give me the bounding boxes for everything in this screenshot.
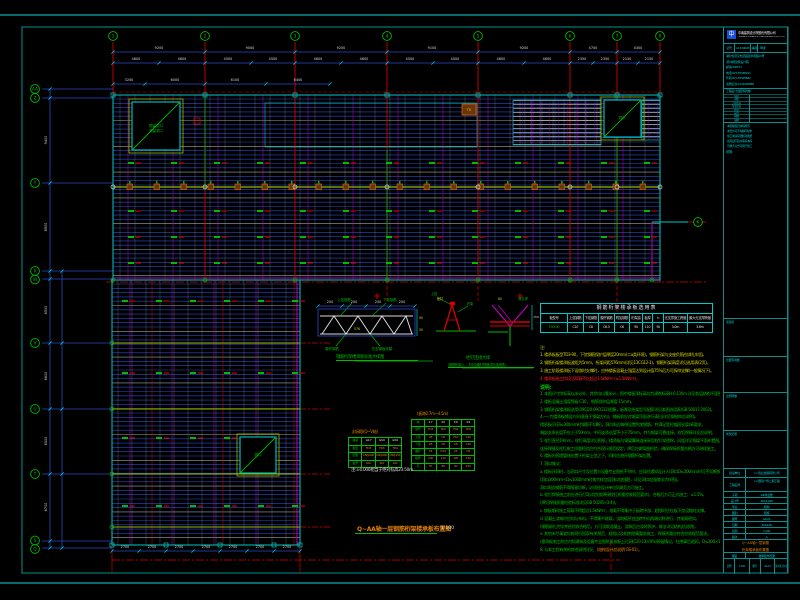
plan-annotation: 栓钉 [437,296,444,301]
dimension-number: 9400 [44,136,48,145]
zone-table-right-title: (板跨2.7m~4.5m) [417,411,448,417]
dimension-number: 2700 [148,545,157,549]
zone-table-cell: 130 [462,456,474,462]
grid-bubble-label: U [33,407,36,413]
selection-cell: C10 [568,323,584,332]
selection-col-header: 桁架高 [630,314,642,323]
plan-annotation: 预留洞口 [149,123,164,128]
disclaimer-line: · 本图版权归本院所有 [726,124,750,128]
grid-bubble-label: W [33,277,38,283]
note-line-yellow: 3. 施工阶段楼承板下设临时支撑时，应待楼板混凝土强度达到设计值75%后方可拆除… [540,368,720,374]
titleblock-divider [724,318,787,319]
note-orange-ref: （结构设计总说明 GS-01）。 [593,547,641,552]
company-info-line: 资质证书:A131002888 [726,82,754,86]
dimension-number: 200 [399,300,405,304]
zone-table-cell: C8@200 [362,453,375,460]
note-line-green: 1. 本图尺寸除标高以米计外，其余均以毫米计，图中楼板顶标高均为建筑标高H-0.… [540,391,720,397]
dimension-number: 9200 [337,46,346,50]
dimension-number: 9100 [428,46,437,50]
dimension-number: 2700 [175,545,184,549]
section-label: 注册师章 [726,394,737,398]
dimension-number: 4300 [634,46,643,50]
dimension-number: 4500 [269,57,278,61]
grid-bubble-label: T [33,472,37,478]
note-line-green: 7. 洞口做法： [540,461,720,467]
company-info-line: 传真:027-87328682 [726,76,751,80]
dimension-number: 4600 [497,57,506,61]
notes-yellow-label: 注: [540,345,720,351]
selection-col-header: 腹杆钢筋 [599,314,615,323]
dimension-number: 2700 [283,545,292,549]
company-name-en: CENTRAL-SOUTH ARCHITECTURAL DESIGN INSTI… [738,36,786,38]
company-info-line: 湖北省武汉市武昌区中南路19号 [726,54,764,58]
zone-table-cell: TD4 [450,427,463,433]
note-line-green: 6. 楼板内预埋管线应置于桁架上弦之下，同时应避开钢筋桁架位置。 [540,453,720,459]
dimension-number: 6000 [171,78,180,82]
selection-col-header: 最大无支撑跨度 [688,314,712,323]
dimension-number: 2700 [202,545,211,549]
note-line-green: 连接焊缝及栓钉施工质量检验应符合现行规范规定，焊后应做弯曲检验，确保焊接质量合格… [540,446,720,452]
dimension-number: 6500 [44,306,48,315]
note-line-green: 4. ── 为楼承板铺设方向(垂直于钢梁方向)，铺板前应对钢梁顶面进行清扫(详见… [540,414,720,420]
zone-table-cell: C10 [450,435,463,441]
section-label: 会签栏 [726,320,734,324]
elevation-note: 注:±0.000相当于绝对标高23.50m [351,467,413,473]
dimension-number: 3200 [125,78,134,82]
dimension-number: 2700 [121,545,130,549]
note-line-green: 端部支承长度不应小于50mm，中间支承长度不小于75mm，并与钢梁可靠连接，栓钉… [540,430,720,436]
disclaimer-line: · 如有疑问及时联系本院 [726,139,752,143]
company-info-line: 电话:027-87338911 [726,71,751,75]
cad-sheet: 9200900092009100920047004300460046004500… [0,0,800,600]
selection-cell: 3.0m [664,323,688,332]
zone-table-cell: 配筋 [349,453,362,460]
note-line-green: 5. 栓钉直径19mm，栓钉高度详见图纸，楼承板与钢梁翼缘连接采用栓钉穿透焊，间… [540,438,720,444]
zone-table-left-title: 封闭段(Q~V轴) [352,429,378,435]
drawing-name-block: Q~AA轴一层钢筋桁架楼承板布置图 [724,539,787,553]
bottom-grid-cell: GS-21 [761,559,776,574]
note-line-green: a. 楼板开洞时，当洞口尺寸及位置与设备专业图纸不符时，应及时通知设计人(洞口D… [540,469,720,475]
plan-annotation: 90 [419,316,423,320]
note-line-green: 8. 与本工程有关的其他说明详见 （结构设计总说明 GS-01）。 [540,547,720,553]
grid-bubble-label: 1 [112,34,115,40]
dimension-number: 4500 [224,57,233,61]
plan-scale: 1:100 [441,526,454,531]
dimension-number: 2150 [623,57,632,61]
titleblock-divider [724,122,787,123]
note-line-green: e. 其他未尽事宜均按现行国家有关规范、规程以及相关图集要求施工，焊接质量应符合… [540,531,720,537]
selection-cell: 3.6m [688,323,712,332]
zone-table-cell: 110 [437,456,450,462]
zone-table-cell: 跨 [412,420,425,426]
zone-table-cell: 下弦 [412,442,425,448]
dimension-number: 6100 [231,78,240,82]
zone-table-cell: TD5 [462,427,474,433]
titleblock-divider [724,430,787,431]
disclaimer-line: · 施工前请仔细核对图纸 [726,134,752,138]
zone-table-cell: C10 [462,435,474,441]
dimension-number: 2350 [601,57,610,61]
zone-table-cell: 80 [437,464,450,470]
zone-table-cell: TD4 [389,446,401,453]
selection-col-header: 无支撑施工跨度 [664,314,688,323]
zone-table-cell: TD3 [437,427,450,433]
selection-col-header: 下弦钢筋 [584,314,600,323]
selection-table-title: 钢筋桁架楼承板选用表 [541,304,712,314]
disclaimer-line: · 签章齐全方可用于施工 [726,144,752,148]
note-line-green: 洞口周边钢筋不得随意切断，必须经设计单位同意后方可施工。 [540,485,720,491]
bottom-grid-cell: 第1张 共1张 [775,559,787,574]
note-line-yellow: 2. 钢筋桁架楼承板波距为5mm，桁架间距576mm(详见13CG12-1)，钢… [540,360,720,366]
bottom-grid: 比例1:100图号GS-21第1张 共1张 [724,558,787,574]
plan-annotation: 30 [419,328,423,332]
zone-table-cell: C8 [425,435,438,441]
grid-bubble-label: 5 [477,34,480,40]
grid-bubble-label: Z [33,96,36,102]
deck-zone-table-left: 跨度≤2.7≤3.0≤3.6板型TD3TD3TD4配筋C8@200C8@200C… [348,437,402,468]
zone-table-cell: ≤3.0 [376,438,389,445]
grid-bubble-label: 6 [569,34,572,40]
note-line-green: 2. 楼板混凝土强度等级 C30， 钢筋保护层厚度 15mm。 [540,399,720,405]
titleblock-note-label: 说明: [726,149,733,154]
zone-table-cell: 2.7 [425,420,438,426]
plan-annotation: 下弦钢筋 [383,297,397,302]
zone-table-cell: ≤3.6 [389,438,401,445]
company-logo: 中 [727,30,736,39]
titleblock-divider [724,356,787,357]
zone-table-cell: 跨度 [349,438,362,445]
note-line-green: 楼承板(开洞≤300mm时钢筋不切断)，洞口周边每侧设置附加钢筋，并满足受拉锚固… [540,422,720,428]
dimension-number: 2700 [229,545,238,549]
dimension-number: 4600 [132,57,141,61]
grid-bubble-label: 3 [294,34,297,40]
note-line-green: b. 栓钉焊接施工前应进行打弯试验(按焊接栓钉质量验收规范要求)，合格后方可正式… [540,492,720,498]
plan-annotation: 60 [498,297,502,301]
selection-cell: 110 [643,323,654,332]
zone-table-cell: C8@200 [376,453,389,460]
dimension-number: 8900 [44,223,48,232]
dimension-number: 4500 [451,57,460,61]
company-info-line: (原中南建筑设计院) [726,60,749,64]
note-line-green: (钢筋绑扎完毕并经验收合格后，方可浇筑混凝土，浇筑后应及时养护，做法详见结构总说… [540,524,720,530]
section-label: 修改记录 [726,432,737,436]
plan-annotation: TD [466,108,472,112]
plan-title: Q~AA轴一层钢筋桁架楼承板布置图 [357,524,451,533]
dimension-number: 2700 [256,545,265,549]
zone-table-cell: C8@150 [389,453,401,460]
opening-label: 预留洞口 [149,128,163,133]
plan-annotation: 栓钉焊 [518,296,528,301]
selection-col-header: 上弦钢筋 [568,314,584,323]
titleblock-field-value: ××国际广场二期工程 [746,478,787,492]
plan-title-underline [355,533,437,534]
plan-annotation: 上弦 [431,291,438,296]
dimension-number: 4600 [543,57,552,61]
zone-table-cell: C4.5 [437,449,450,455]
company-info-line: 邮编:430071 [726,65,742,69]
dimension-number: 200 [375,300,381,304]
notes-header: 说明: [540,384,720,391]
plan-annotation: 桁架 [467,301,474,306]
zone-table-cell: C10 [462,442,474,448]
zone-table-cell: 120 [450,456,463,462]
deck-selection-table: 钢筋桁架楼承板选用表 板型号上弦钢筋下弦钢筋腹杆钢筋附加钢筋桁架高板厚h无支撑施… [540,303,713,333]
zone-table-cell: 100 [462,464,474,470]
note-line-green: (楼承板施工前应对照建筑及设备专业图纸复核板上孔洞(C20-13)·(9%)预留… [540,539,720,545]
stud-detail-caption: 栓钉连接大样 [466,355,490,361]
zone-table-cell: 型号 [412,427,425,433]
dimension-number: 9000 [246,46,255,50]
dimension-number: 4600 [178,57,187,61]
note-line-green: (焊钉焊接质量检验标准详见GB 50205-(3-4))。 [540,500,720,506]
zone-table-cell: 70 [425,464,438,470]
plan-annotation: 压型钢板底模 [372,346,393,351]
dimension-number: 200 [327,300,333,304]
note-line-green: d. 混凝土浇筑时应均匀布料，不得集中堆载，浇筑顺序宜由跨中向两端对称进行，并振… [540,516,720,522]
zone-table-cell: 100 [425,456,438,462]
bottom-grid-cell: 1:100 [735,559,750,574]
titleblock-divider [724,392,787,393]
zone-table-cell: C4 [425,449,438,455]
grid-bubble-label: Q [33,547,37,553]
titleblock-field-label: 工程名称 [724,478,746,492]
grid-bubble-label: 7 [616,34,619,40]
zone-table-cell: C8 [437,442,450,448]
dimension-number: 9200 [520,46,529,50]
selection-cell: C8 [584,323,600,332]
zone-table-cell: 板厚 [412,456,425,462]
zone-table-cell: 高 [412,464,425,470]
dimension-number: 6500 [44,437,48,446]
bottom-grid-cell: 图号 [750,559,761,574]
grid-bubble-label: 8 [659,34,662,40]
note-line-red: 4. 楼承板施工阶段活荷载不应超过1.5kN/m²·(≤1.5kN/m²)。 [540,376,720,382]
plan-annotation: 150 [533,315,539,319]
deck-zone-table-right: 跨2.73.03.64.5型号TD3TD3TD4TD5上弦C8C8C10C10下… [411,419,475,471]
selection-col-header: 附加钢筋 [615,314,631,323]
selection-col-header: 板厚 [643,314,654,323]
dimension-number: 6700 [44,503,48,512]
zone-table-cell: 板型 [349,446,362,453]
zone-table-cell: ≤2.7 [362,438,375,445]
zone-table-cell: C8 [450,442,463,448]
selection-cell: C6.5 [599,323,615,332]
selection-table-header: 板型号上弦钢筋下弦钢筋腹杆钢筋附加钢筋桁架高板厚h无支撑施工跨度最大无支撑跨度 [541,314,712,323]
zone-table-cell: 3.0 [437,420,450,426]
plan-annotation: 上弦钢筋 [337,297,351,302]
dimension-number: 4600 [314,57,323,61]
sign-table-title: 工程设计出图专用章: [726,89,751,93]
disclaimer-line: · 未经许可不得翻印复制 [726,129,752,133]
selection-cell: 90 [653,323,664,332]
grid-bubble-label: AA [32,87,38,93]
caption-underline [336,360,418,361]
dimension-number: 4600 [360,57,369,61]
zone-table-cell: 90 [450,464,463,470]
zone-table-cell: C6 [425,442,438,448]
plan-annotation: 洞口 [618,115,626,120]
titleblock-row: 工程名称××国际广场二期工程 [724,477,787,492]
titleblock-divider [724,52,787,53]
plan-annotation: 洞口 [254,452,262,457]
grid-bubble-label: 2 [204,34,207,40]
zone-table-cell: C5 [450,449,463,455]
note-line-yellow: 1. 楼承板板型TD3-90，下弦钢筋保护层厚度20mm(二a类环境)，钢筋桁架… [540,352,720,358]
zone-table-cell: TD3 [376,446,389,453]
note-line-green: 3. 钢筋桁架楼承板选用(09CJ20-09CG12)图集，板厚及桁架型号配筋详… [540,407,720,413]
grid-bubble-label: 4 [386,34,389,40]
plan-annotation: 576 [354,327,360,331]
section-label: 出图专用章 [726,358,740,362]
zone-table-cell: 4.5 [462,420,474,426]
company-name: 中南建筑设计院股份有限公司 [738,30,776,35]
selection-col-header: h [653,314,664,323]
zone-table-cell: C6 [462,449,474,455]
zone-table-cell: TD3 [425,427,438,433]
zone-table-cell: 腹杆 [412,449,425,455]
grid-bubble-label: X [33,269,36,275]
grid-bubble-label: Y [33,181,37,187]
zone-table-cell: TD3 [362,446,375,453]
plan-annotation: 腹杆钢筋 [325,346,339,351]
selection-cell: 90 [630,323,642,332]
selection-cell: TD3-90 [541,323,568,332]
dimension-number: 6400 [294,78,303,82]
grid-bubble-label: S [34,538,37,544]
dimension-number: 6600 [44,372,48,381]
note-line-green: (洞口300mm<D≤1000mm时按大样加设洞口加强筋，详见洞口加强做法大样图… [540,477,720,483]
dimension-number: 9200 [155,46,164,50]
zone-table-cell: 上弦 [412,435,425,441]
dimension-number: 200 [351,300,357,304]
dimension-number: 4700 [589,46,598,50]
dimension-number: 2150 [645,57,654,61]
caption-underline [448,367,534,368]
dimension-number: 2350 [578,57,587,61]
zone-table-cell: C8 [437,435,450,441]
selection-table-row: TD3-90C10C8C6.5C690110903.0m3.6m [541,323,712,332]
note-line-green: c. 铺板期间施工荷载不得超过1.5kN/m²，堆载不得集中于板跨中部，超限时应… [540,508,720,514]
dimension-number: 4500 [406,57,415,61]
bottom-grid-cell: 比例 [724,559,735,574]
zone-table-cell: 3.6 [450,420,463,426]
notes-block: 注:1. 楼承板板型TD3-90，下弦钢筋保护层厚度20mm(二a类环境)，钢筋… [540,343,722,565]
selection-cell: C6 [615,323,631,332]
grid-bubble-label: K [697,220,700,226]
title-block: 中中南建筑设计院股份有限公司CENTRAL-SOUTH ARCHITECTURA… [723,27,788,573]
selection-col-header: 板型号 [541,314,568,323]
grid-bubble-label: V [33,341,36,347]
